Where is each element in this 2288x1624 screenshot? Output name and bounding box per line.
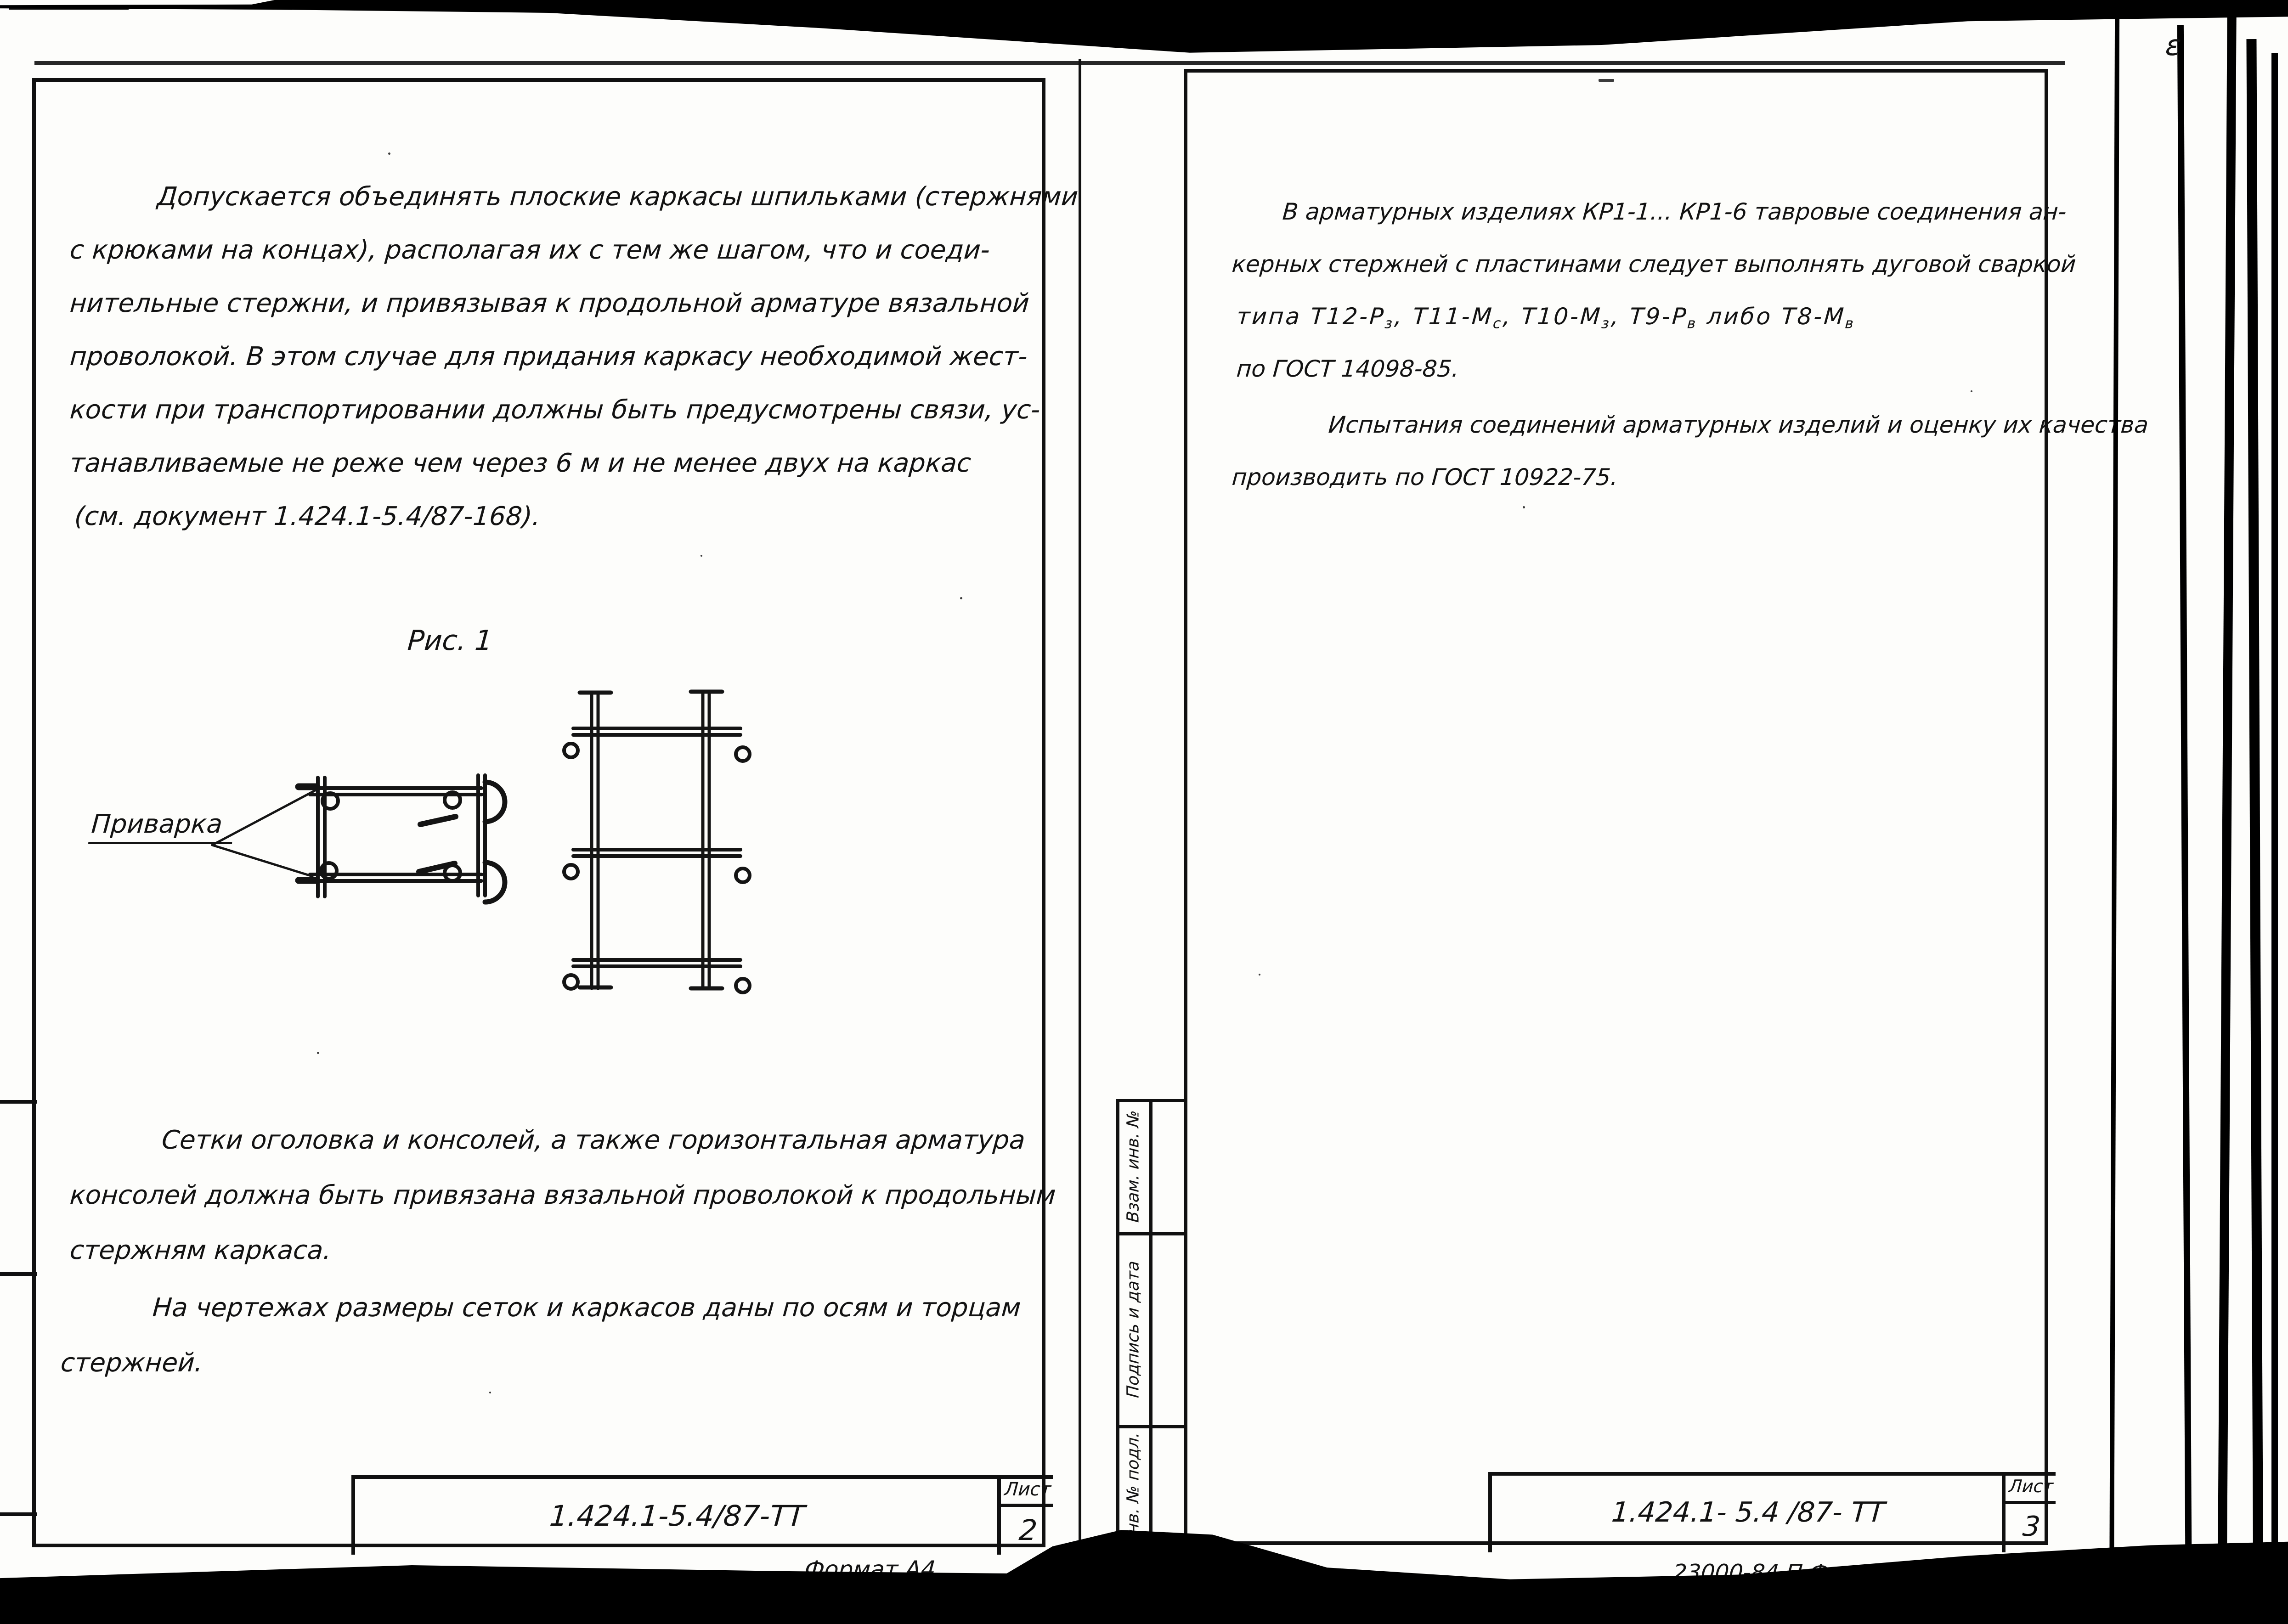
binding-line: [2109, 14, 2119, 1624]
text-line: стержней.: [60, 1348, 204, 1378]
document-code: 1.424.1-5.4/87-ТТ: [355, 1479, 997, 1552]
binding-line: [2177, 25, 2192, 1624]
text-line: по ГОСТ 14098-85.: [1236, 355, 1460, 382]
text-line: кости при транспортировании должны быть …: [69, 395, 1041, 425]
speck: [1259, 974, 1260, 976]
sheet-number: 3: [2006, 1504, 2056, 1549]
text-line: Допускается объединять плоские каркасы ш…: [156, 182, 1079, 212]
cage-side-view: [564, 692, 750, 992]
text-line: проволокой. В этом случае для придания к…: [69, 342, 1028, 372]
binding-line: [2217, 16, 2236, 1624]
speck: [489, 1392, 491, 1393]
speck: [1599, 79, 1614, 82]
text-line: (см. документ 1.424.1-5.4/87-168).: [73, 502, 542, 531]
speck: [1523, 506, 1525, 508]
sheet-label: Лист: [1001, 1476, 1053, 1503]
speck: [1971, 390, 1972, 392]
figure-caption: Рис. 1: [407, 625, 493, 657]
sheet-number: 2: [1001, 1507, 1053, 1553]
text-line: танавливаемые не реже чем через 6 м и не…: [69, 448, 972, 478]
text-line: консолей должна быть привязана вязальной…: [69, 1180, 1057, 1210]
speck: [960, 597, 962, 599]
corner-mark: ε: [2164, 28, 2182, 62]
figure-reinforcement-cage: [46, 657, 873, 1070]
speck: [701, 555, 702, 557]
binding-line: [2271, 53, 2278, 1624]
speck: [317, 1052, 319, 1054]
fold-tick: [0, 1512, 37, 1516]
fold-tick: [0, 1272, 37, 1276]
leader-lines: [212, 790, 316, 876]
text-line: с крюками на концах), располагая их с те…: [69, 235, 991, 265]
text-line: производить по ГОСТ 10922-75.: [1231, 464, 1619, 491]
text-line: Сетки оголовка и консолей, а также гориз…: [161, 1125, 1026, 1155]
speck: [388, 152, 390, 155]
binding-line: [2246, 39, 2263, 1624]
text-line: типа Т12-Рз, Т11-Мс, Т10-Мз, Т9-Рв либо …: [1236, 303, 1857, 332]
text-line: керных стержней с пластинами следует вып…: [1231, 251, 2077, 277]
fold-tick: [0, 1100, 37, 1104]
text-line: стержням каркаса.: [69, 1235, 332, 1265]
text-line: нительные стержни, и привязывая к продол…: [69, 288, 1030, 318]
text-line: На чертежах размеры сеток и каркасов дан…: [152, 1293, 1022, 1323]
text-line: Испытания соединений арматурных изделий …: [1328, 412, 2149, 438]
stamp-cell-vzam-inv: Взам. инв. №: [1117, 1101, 1149, 1231]
cage-top-view: [299, 775, 505, 902]
right-page-frame: [1184, 69, 2048, 1545]
sheet-label: Лист: [2006, 1473, 2056, 1500]
text-line: В арматурных изделиях КР1-1... КР1-6 тав…: [1282, 198, 2068, 225]
scan-streak: [34, 61, 2065, 65]
stamp-cell-podpis-data: Подпись и дата: [1117, 1235, 1149, 1424]
document-code: 1.424.1- 5.4 /87- ТТ: [1492, 1476, 2002, 1549]
scan-band-top: [0, 0, 2288, 64]
page-fold-line: [1079, 59, 1081, 1588]
